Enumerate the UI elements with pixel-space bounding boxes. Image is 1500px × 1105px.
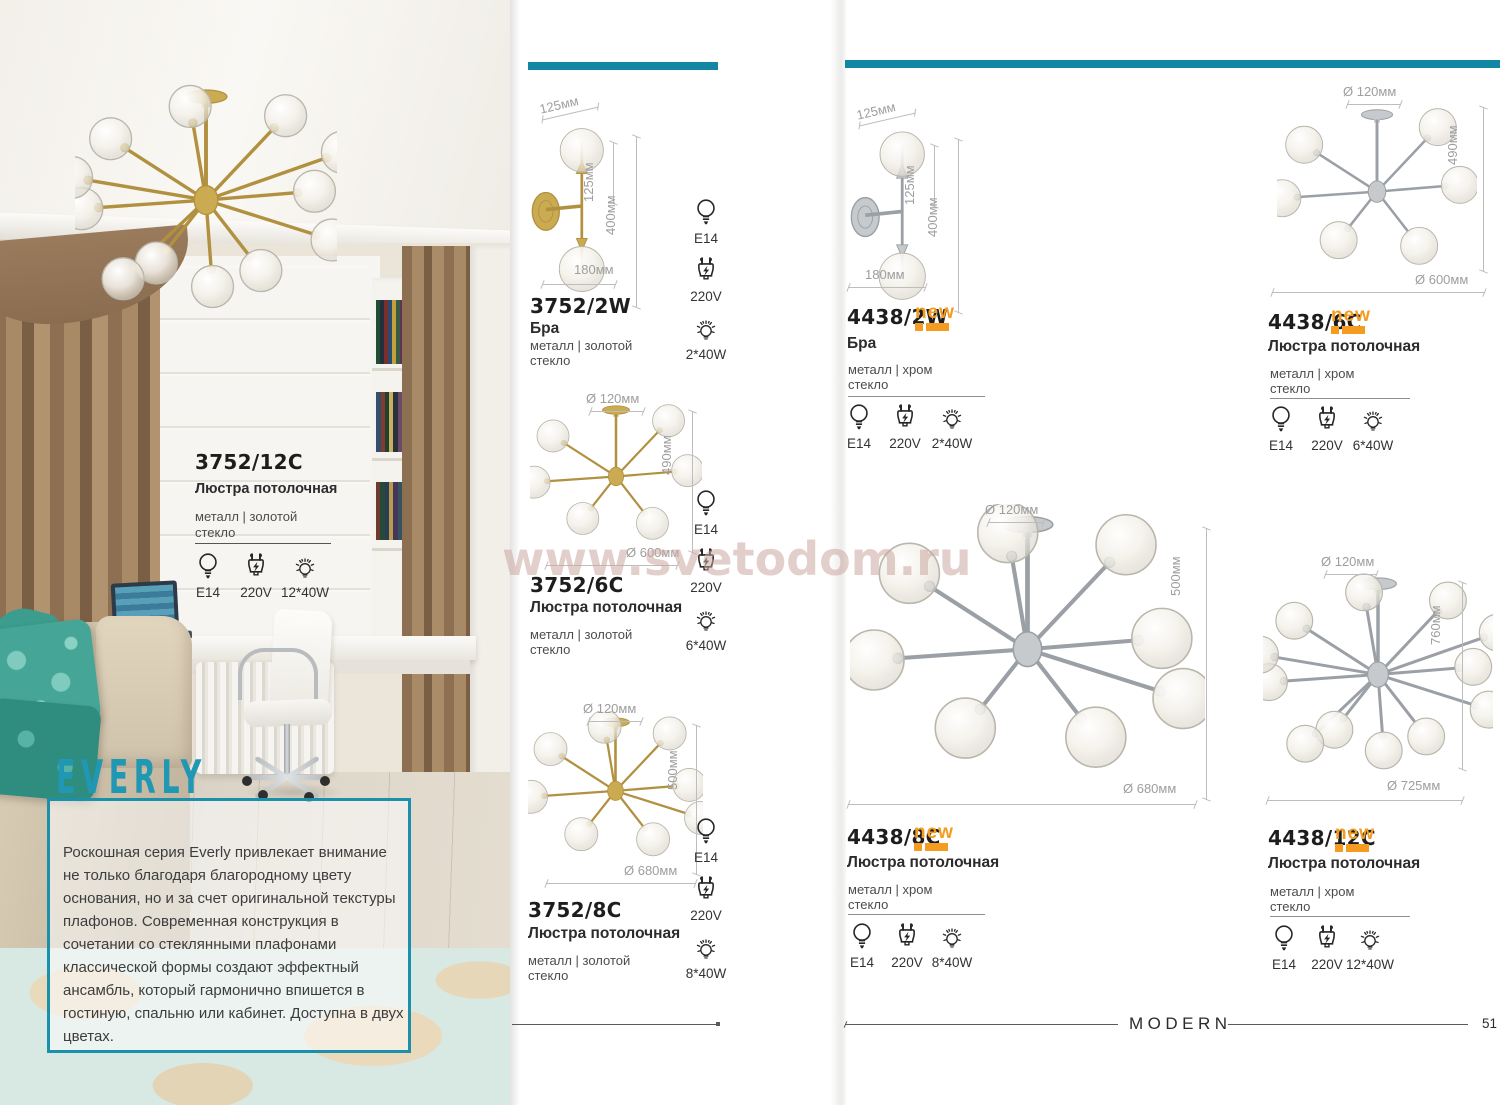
brightness-icon [292,552,318,582]
product-material-2: стекло [528,968,568,983]
dimension-label: 760мм [1428,605,1443,645]
product-type: Бра [530,320,559,338]
product-type: Бра [847,335,876,353]
brightness-icon [939,403,965,433]
product-material: металл | золотой [530,627,632,642]
featured-chandelier-image [75,70,337,338]
dimension-line [590,411,644,412]
spec-value: 220V [677,580,735,595]
spec-value: 8*40W [677,966,735,981]
dimension-line [1272,292,1485,293]
dimension-label: Ø 600мм [1415,272,1468,287]
bulb-icon [846,403,872,433]
bulb-icon [693,198,719,228]
product-image-chandelier [850,504,1205,804]
dimension-label: Ø 120мм [985,502,1038,517]
dimension-label: 180мм [574,262,614,277]
section-bar [845,60,1500,68]
new-badge-label: new [915,305,955,320]
spec-value: 6*40W [1344,438,1402,453]
new-badge: new [1331,308,1371,334]
brightness-icon [693,314,719,344]
divider [1270,398,1410,399]
dimension-line [1325,574,1377,575]
plug-icon [1314,924,1340,954]
chair-armrest [238,648,318,700]
spec-voltage: 220V [677,875,735,923]
product-material-2: стекло [848,377,888,392]
dimension-line [958,139,959,313]
plug-icon [693,256,719,286]
sofa-armrest [96,616,192,768]
spec-power: 2*40W [677,314,735,362]
dimension-label: 400мм [925,197,940,237]
product-card-3752-8c: Ø 120мм 500мм Ø 680мм 3752/8C Люстра пот… [528,695,733,995]
spec-power: 12*40W [1341,924,1399,972]
spec-power: 8*40W [677,933,735,981]
curtain-right [402,246,474,806]
spec-lamp-socket: E14 [677,817,735,865]
product-type: Люстра потолочная [1268,855,1420,873]
dimension-label: 500мм [1168,556,1183,596]
new-badge-label: new [1335,826,1375,841]
brightness-icon [1357,924,1383,954]
room-photo: 3752/12C Люстра потолочная металл | золо… [0,0,510,1105]
dimension-label: Ø 120мм [1343,84,1396,99]
divider [848,396,985,397]
spec-lamp-socket: E14 [677,489,735,537]
dimension-label: Ø 725мм [1387,778,1440,793]
spec-value: E14 [677,231,735,246]
product-image-sconce [841,119,969,304]
books [376,482,404,540]
product-card-4438-6c: Ø 120мм 490мм Ø 600мм 4438/6C new Люстра… [1255,80,1500,455]
product-material-2: стекло [530,353,570,368]
series-title: EVERLY [56,750,207,804]
spec-voltage: 220V [677,547,735,595]
section-bar [528,62,718,70]
spec-value: 220V [677,908,735,923]
dimension-line [848,804,1196,805]
dimension-label: 490мм [659,435,674,475]
plug-icon [892,403,918,433]
dimension-label: Ø 680мм [1123,781,1176,796]
product-type: Люстра потолочная [847,854,999,872]
footer-rule [512,1024,718,1025]
product-material-2: стекло [848,897,888,912]
product-image-chandelier [1263,552,1493,804]
footer-rule-tick [716,1022,720,1026]
dimension-label: Ø 680мм [624,863,677,878]
product-card-3752-6c: Ø 120мм 490мм Ø 600мм 3752/6C Люстра пот… [528,385,733,670]
product-card-4438-2w: 125мм 125мм 400мм 180мм 4438/2W new Бра … [845,95,1230,465]
dimension-label: 125мм [581,162,596,202]
chair-caster [242,776,252,786]
product-card-4438-8c: Ø 120мм 500мм Ø 680мм 4438/8C new Люстра… [845,498,1230,978]
spec-value: E14 [677,522,735,537]
spec-value: 12*40W [276,585,334,600]
dimension-line [1462,582,1463,770]
dimension-line [546,883,696,884]
chair-caster [320,776,330,786]
brightness-icon [693,933,719,963]
dimension-label: Ø 600мм [626,545,679,560]
divider [848,914,985,915]
dimension-label: Ø 120мм [1321,554,1374,569]
page-edge-shadow [510,0,520,1105]
spec-value: 2*40W [677,347,735,362]
dimension-line [636,136,637,308]
plug-icon [693,875,719,905]
bulb-icon [1271,924,1297,954]
bulb-icon [1268,405,1294,435]
dimension-line [1483,107,1484,272]
product-code: 3752/2W [530,294,631,318]
product-code: 3752/12C [195,450,303,474]
catalog-spread: 3752/12C Люстра потолочная металл | золо… [0,0,1500,1105]
spec-power: 12*40W [276,552,334,600]
bulb-icon [693,489,719,519]
new-badge: new [915,305,955,331]
dimension-line [1206,528,1207,800]
brightness-icon [939,922,965,952]
books [376,392,404,452]
spec-power: 6*40W [1344,405,1402,453]
bulb-icon [195,552,221,582]
divider [1270,916,1410,917]
dimension-line [1347,104,1401,105]
footer-rule [845,1024,1118,1025]
dimension-line [546,565,678,566]
dimension-label: 125мм [902,165,917,205]
footer-category: MODERN [1129,1014,1232,1034]
bulb-icon [849,922,875,952]
product-material-2: стекло [195,525,235,540]
dimension-label: Ø 120мм [586,391,639,406]
spec-value: 2*40W [923,436,981,451]
dimension-line [848,287,926,288]
spec-power: 2*40W [923,403,981,451]
product-material-2: стекло [1270,899,1310,914]
series-description: Роскошная серия Everly привлекает вниман… [63,841,405,1048]
bulb-icon [693,817,719,847]
spec-value: 220V [677,289,735,304]
product-material: металл | золотой [195,509,297,524]
page-number: 51 [1482,1016,1497,1031]
footer-rule [1228,1024,1468,1025]
product-material: металл | хром [1270,366,1354,381]
product-material: металл | хром [848,882,932,897]
spec-value: 8*40W [923,955,981,970]
product-code: 3752/8C [528,898,622,922]
spec-value: 6*40W [677,638,735,653]
product-card-3752-2w: 125мм 125мм 400мм 180мм 3752/2W Бра мета… [528,90,733,380]
dimension-line [1267,800,1463,801]
spec-voltage: 220V [677,256,735,304]
product-card-4438-12c: Ø 120мм 760мм Ø 725мм 4438/12C new Люстр… [1255,540,1500,975]
spec-value: 12*40W [1341,957,1399,972]
plug-icon [693,547,719,577]
dimension-label: 180мм [865,267,905,282]
divider [195,543,331,544]
product-type: Люстра потолочная [1268,338,1420,356]
dimension-label: 400мм [603,195,618,235]
dimension-line [542,284,616,285]
product-material-2: стекло [1270,381,1310,396]
spec-power: 6*40W [677,605,735,653]
product-type: Люстра потолочная [530,599,682,617]
plug-icon [1314,405,1340,435]
product-material: металл | хром [848,362,932,377]
plug-icon [243,552,269,582]
product-type: Люстра потолочная [528,925,680,943]
product-material: металл | золотой [528,953,630,968]
new-badge-label: new [1331,308,1371,323]
books [376,300,404,364]
brightness-icon [1360,405,1386,435]
dimension-label: 500мм [665,750,680,790]
dimension-label: Ø 120мм [583,701,636,716]
product-type: Люстра потолочная [195,481,337,497]
spec-lamp-socket: E14 [677,198,735,246]
new-badge-label: new [914,825,954,840]
spec-power: 8*40W [923,922,981,970]
dimension-line [588,721,642,722]
dimension-label: 490мм [1445,125,1460,165]
dimension-line [988,522,1044,523]
chair-post [284,724,290,774]
new-badge: new [1335,826,1375,852]
product-material: металл | золотой [530,338,632,353]
plug-icon [894,922,920,952]
series-description-box: Роскошная серия Everly привлекает вниман… [47,798,411,1053]
new-badge: new [914,825,954,851]
brightness-icon [693,605,719,635]
spec-value: E14 [677,850,735,865]
product-code: 3752/6C [530,573,624,597]
product-material-2: стекло [530,642,570,657]
product-material: металл | хром [1270,884,1354,899]
